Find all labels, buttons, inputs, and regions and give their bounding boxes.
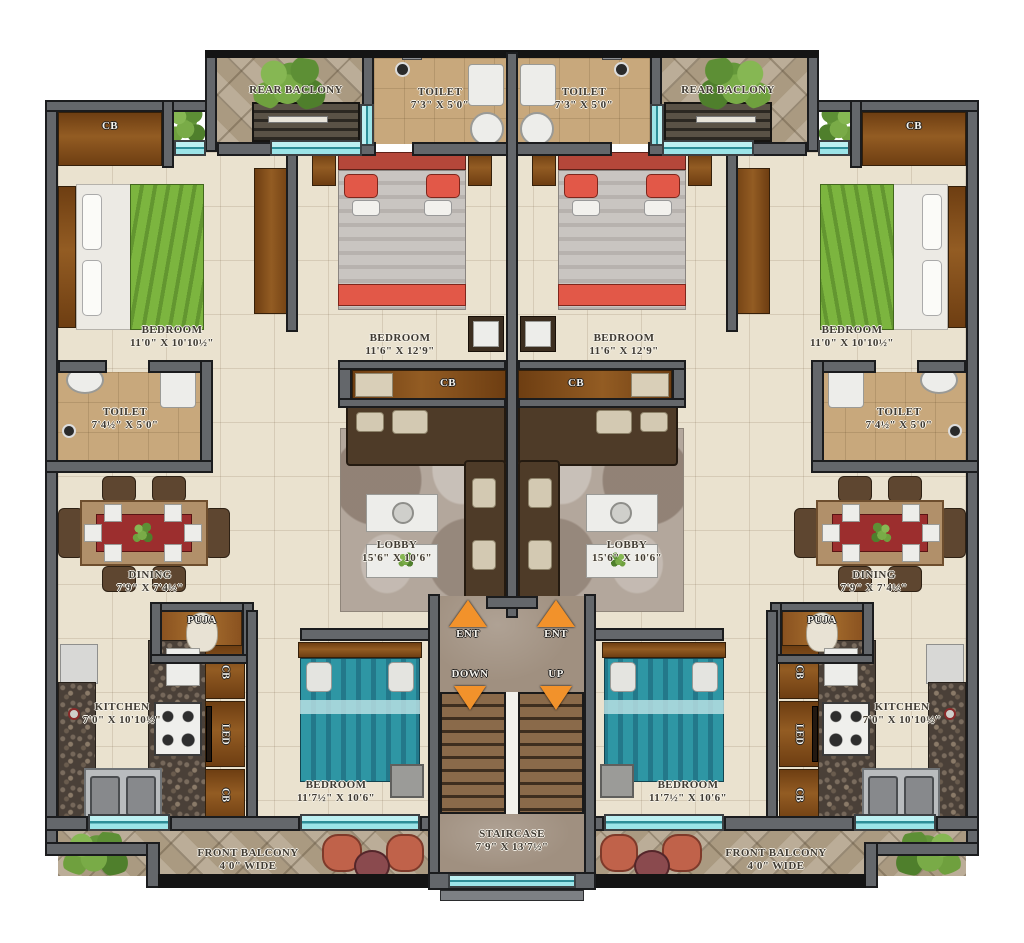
- up-arrow-icon: [540, 686, 572, 710]
- wall-stair-base: [440, 890, 584, 901]
- stair-divider: [506, 692, 518, 814]
- entry-arrow-icon: [537, 600, 575, 627]
- up-label: UP: [516, 668, 596, 681]
- staircase-label: STAIRCASE 7'9" X 13'7½": [432, 828, 592, 854]
- ent-label: ENT: [428, 628, 508, 641]
- window: [448, 874, 576, 888]
- wall-party: [506, 52, 518, 618]
- down-label: DOWN: [420, 668, 520, 681]
- staircase-block: ENT ENT DOWN UP STAIRCASE 7'9" X 13'7½": [0, 0, 1024, 943]
- floor-plan: CB REAR BACLONY TOILET 7'3" X 5'0" BEDRO…: [0, 0, 1024, 943]
- wall-stub: [486, 596, 538, 609]
- down-arrow-icon: [454, 686, 486, 710]
- stairs-down: [440, 692, 506, 814]
- ent-label: ENT: [516, 628, 596, 641]
- entry-arrow-icon: [449, 600, 487, 627]
- stairs-up: [518, 692, 584, 814]
